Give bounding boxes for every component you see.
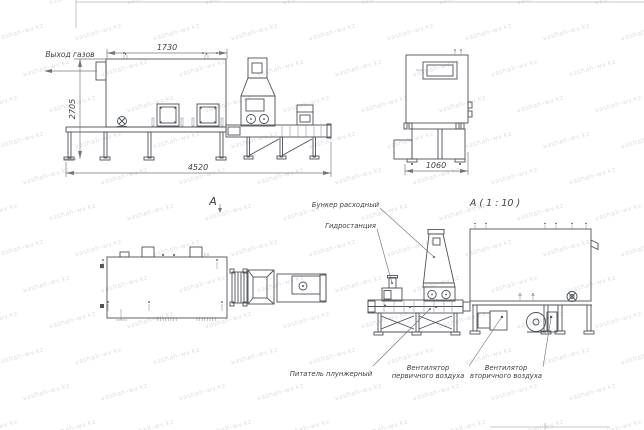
callout-fan-secondary-line2: вторичного воздуха [470, 372, 542, 380]
gas-outlet-leader [44, 69, 97, 73]
feed-hopper [423, 230, 455, 302]
fan-primary [478, 311, 507, 330]
view-a-arrow [218, 204, 222, 213]
callout-hydro: Гидростанция [325, 222, 376, 230]
end-small-marks [411, 49, 462, 165]
dim-1060-label: 1060 [426, 161, 446, 170]
side-truss [244, 137, 319, 159]
band-rollers [282, 126, 321, 137]
hydro-station [382, 276, 402, 302]
detail-view: А ( 1 : 10 ) [290, 198, 598, 380]
callout-fan-secondary-line1: Вентилятор [485, 364, 528, 372]
gas-outlet-label: Выход газов [45, 50, 94, 59]
boiler-stand [470, 305, 594, 334]
stand-rail [66, 127, 226, 132]
deck-hatch-1 [157, 104, 179, 126]
drawing-sheet: vashah-wv.kzvashah-wv.kzvashah-wv.kzvash… [0, 0, 644, 430]
callout-hopper: Бункер расходный [312, 201, 380, 209]
dim-4520-label: 4520 [188, 163, 208, 172]
callout-fan-primary-line1: Вентилятор [407, 364, 450, 372]
deck-hatch-2 [197, 104, 219, 126]
end-stand [412, 129, 465, 159]
plan-feeder-top [277, 274, 326, 302]
side-tower [241, 58, 275, 126]
deck-bolts [124, 53, 223, 126]
drain-stub [591, 240, 598, 250]
feeder-truss [374, 313, 460, 335]
chimney [248, 58, 267, 78]
rail-bolts [518, 293, 535, 301]
dim-2705-label: 2705 [68, 99, 77, 119]
end-view: 1060 [394, 49, 472, 175]
callout-fan-primary-line2: первичного воздуха [392, 372, 465, 380]
plan-view: А [100, 195, 326, 321]
view-a-label: А [208, 195, 217, 208]
end-fan-box [394, 140, 412, 159]
boiler-body [470, 229, 598, 301]
end-view-body [394, 55, 472, 162]
callout-leaders [373, 208, 551, 367]
gas-outlet-stub [96, 62, 106, 80]
fan-secondary [527, 312, 558, 332]
dim-1730-label: 1730 [157, 43, 177, 52]
side-view-body [64, 59, 226, 160]
rail-flange [567, 292, 577, 302]
callout-feeder: Питатель плунжерный [290, 370, 373, 378]
boiler-top-bolts [474, 223, 587, 229]
detail-title: А ( 1 : 10 ) [469, 198, 520, 209]
plan-marks [100, 253, 223, 320]
technical-drawing: 1730 2705 4520 Выход газов [0, 0, 644, 430]
sheet-frame [76, 0, 644, 430]
plunger-feeder [368, 300, 470, 313]
side-view: 1730 2705 4520 Выход газов [44, 43, 331, 177]
side-feeder-band [226, 105, 331, 138]
plan-body [107, 247, 227, 318]
deck-valve [117, 117, 127, 127]
plan-bellows [230, 269, 247, 306]
plan-hopper-top [248, 270, 274, 304]
